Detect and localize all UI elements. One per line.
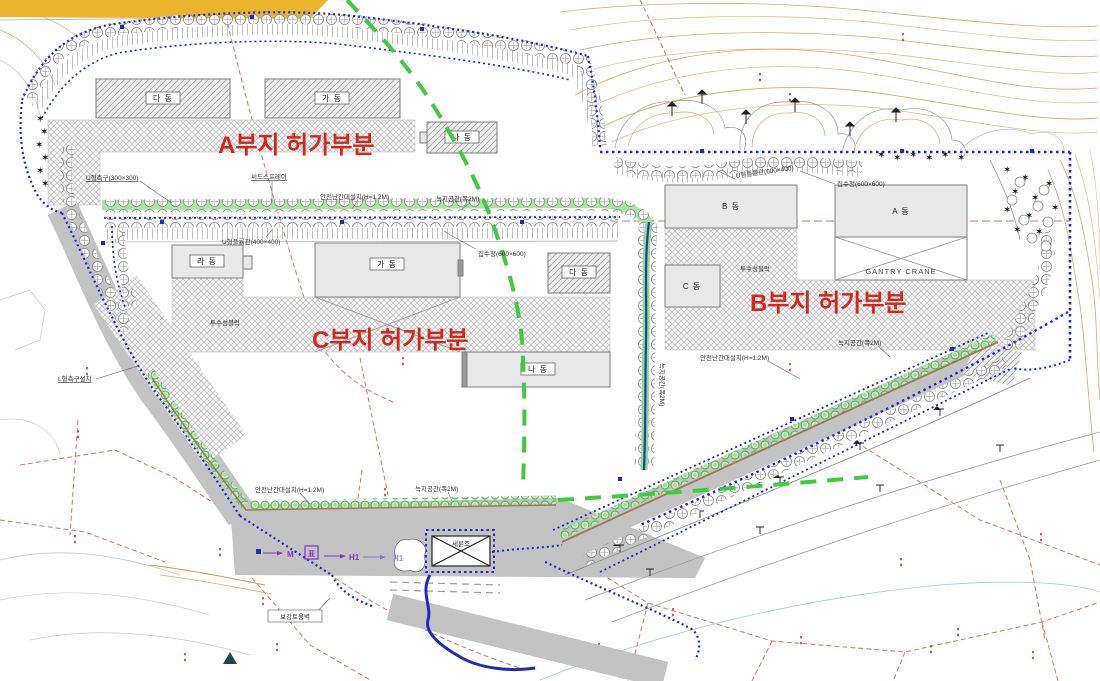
ann-u-gutter300: U형측구(300×300) bbox=[86, 173, 138, 182]
marker-pyo: 표 bbox=[308, 550, 316, 559]
svg-text:✶: ✶ bbox=[36, 166, 44, 177]
svg-text:✶: ✶ bbox=[35, 140, 43, 151]
label-c-da: 다 동 bbox=[569, 268, 589, 277]
svg-text:✶: ✶ bbox=[1051, 203, 1059, 214]
ann-retaining-wall: 보강토옹벽 bbox=[280, 612, 310, 621]
label-c-ra: 라 동 bbox=[197, 257, 217, 266]
ann-green2m-top: 녹지공간(폭2M) bbox=[436, 194, 479, 203]
site-plan: 세륜조 다 동 가 동 나 동 라 동 가 동 다 동 나 동 B 동 A 동 … bbox=[0, 0, 1100, 681]
label-gantry-crane: GANTRY CRANE bbox=[865, 267, 936, 276]
svg-text:✶: ✶ bbox=[40, 127, 48, 138]
area-label-b: B부지 허가부분 bbox=[750, 290, 906, 317]
ann-seed-spray: 씨드스프레이 bbox=[251, 172, 287, 181]
svg-text:✶: ✶ bbox=[41, 153, 49, 164]
marker-m: M bbox=[287, 550, 294, 559]
label-a-da: 다 동 bbox=[153, 94, 173, 103]
label-a-ga: 가 동 bbox=[322, 94, 342, 103]
ann-catch600-a: 집수정(600×600) bbox=[478, 249, 526, 258]
ann-retaining-wall-box: 보강토옹벽 bbox=[268, 610, 322, 622]
green-channel-vertical bbox=[644, 222, 649, 470]
ann-permeable-c: 투수성블럭 bbox=[210, 318, 240, 327]
ann-green2m-vertical: 녹지공간(폭2M) bbox=[658, 363, 667, 406]
wheel-wash-label: 세륜조 bbox=[452, 539, 470, 548]
ann-green2m-right: 녹지공간(폭2M) bbox=[838, 338, 881, 347]
green-strip-mid bbox=[102, 203, 648, 242]
svg-text:✶: ✶ bbox=[41, 179, 49, 190]
survey-triangle-icon bbox=[223, 652, 237, 664]
svg-text:✶: ✶ bbox=[877, 150, 885, 161]
label-b-b: B 동 bbox=[722, 202, 740, 211]
svg-text:✶: ✶ bbox=[1013, 225, 1021, 236]
svg-text:✶: ✶ bbox=[941, 150, 949, 161]
ann-railing-right: 안전난간대설치(H=1.2M) bbox=[700, 353, 769, 362]
area-label-c: C부지 허가부분 bbox=[312, 327, 468, 354]
svg-text:✶: ✶ bbox=[893, 153, 901, 164]
ann-green2m-bottom: 녹지공간(폭2M) bbox=[415, 484, 458, 493]
label-b-a: A 동 bbox=[892, 207, 909, 216]
ann-railing-top: 안전난간대설치(H=1.2M) bbox=[320, 192, 389, 201]
ann-flume400: U형플륨관(400×400) bbox=[222, 237, 280, 246]
ann-permeable-b: 투수성블럭 bbox=[740, 264, 770, 273]
hill-contours bbox=[615, 100, 1064, 156]
svg-text:✶: ✶ bbox=[909, 150, 917, 161]
ann-l-gutter: L형측구설치 bbox=[58, 374, 92, 383]
marker-h1-a: H1 bbox=[349, 553, 360, 562]
svg-text:✶: ✶ bbox=[1003, 165, 1011, 176]
label-b-c: C 동 bbox=[683, 282, 701, 291]
svg-text:✶: ✶ bbox=[36, 114, 44, 125]
area-label-a: A부지 허가부분 bbox=[218, 132, 374, 159]
wheel-wash-facility: 세륜조 bbox=[394, 536, 490, 572]
label-c-na: 나 동 bbox=[528, 365, 548, 374]
marker-h1-b: H1 bbox=[393, 554, 404, 563]
svg-text:✶: ✶ bbox=[1003, 205, 1011, 216]
svg-text:✶: ✶ bbox=[925, 153, 933, 164]
ann-railing-bottom: 안전난간대설치(H=1.2M) bbox=[255, 485, 324, 494]
ann-catch600-b: 집수정(600×600) bbox=[837, 179, 885, 188]
label-c-ga: 가 동 bbox=[377, 260, 397, 269]
svg-text:✶: ✶ bbox=[957, 153, 965, 164]
